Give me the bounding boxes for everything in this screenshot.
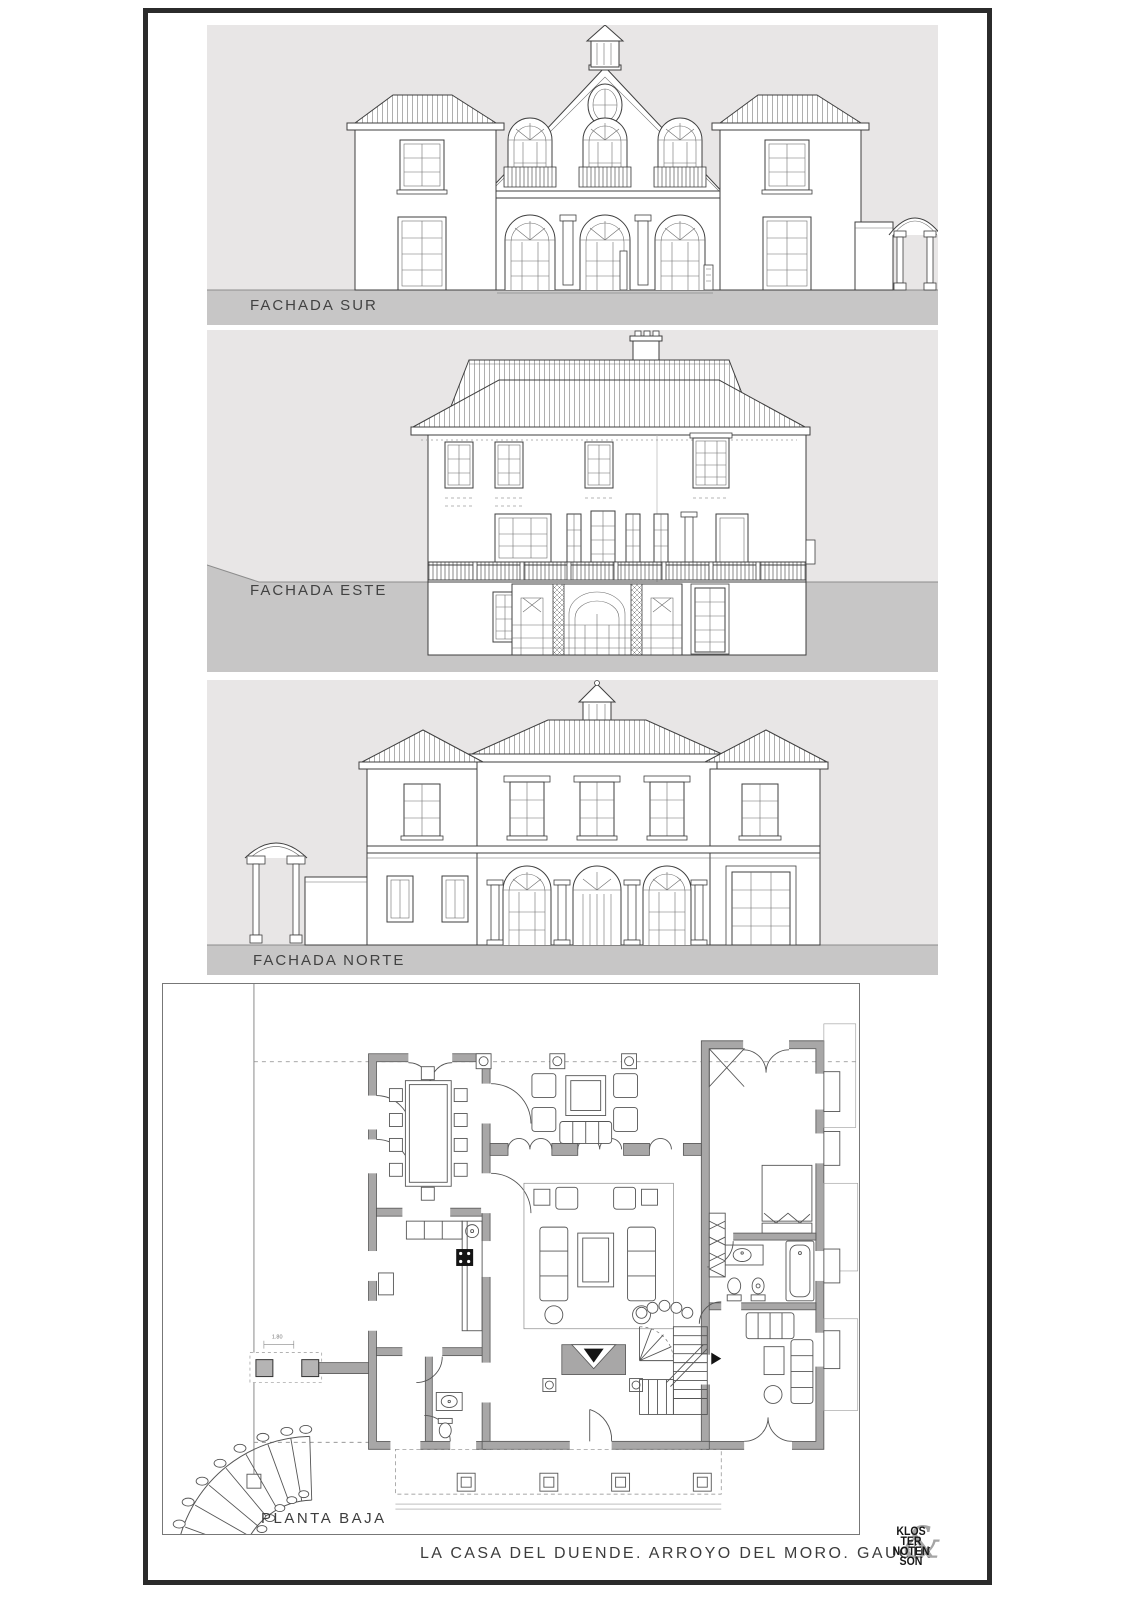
panel-fachada-sur: FACHADA SUR [207,25,938,325]
label-planta-baja: PLANTA BAJA [261,1510,387,1527]
planta-baja-drawing: 1.80 [163,984,859,1534]
fachada-sur-drawing [207,25,938,325]
fachada-este-drawing [207,330,938,672]
label-fachada-norte: FACHADA NORTE [253,952,405,969]
label-fachada-sur: FACHADA SUR [250,297,378,314]
architect-logo: & KLOS TER NOTEN SON [889,1526,939,1574]
dimension-label: 1.80 [272,1335,283,1341]
fachada-norte-drawing [207,680,938,975]
drawing-sheet: FACHADA SUR [0,0,1131,1600]
sheet-title: LA CASA DEL DUENDE. ARROYO DEL MORO. GAU… [420,1545,880,1563]
panel-fachada-este: FACHADA ESTE [207,330,938,672]
label-fachada-este: FACHADA ESTE [250,582,387,599]
panel-fachada-norte: FACHADA NORTE [207,680,938,975]
panel-planta-baja: 1.80 [162,983,860,1535]
